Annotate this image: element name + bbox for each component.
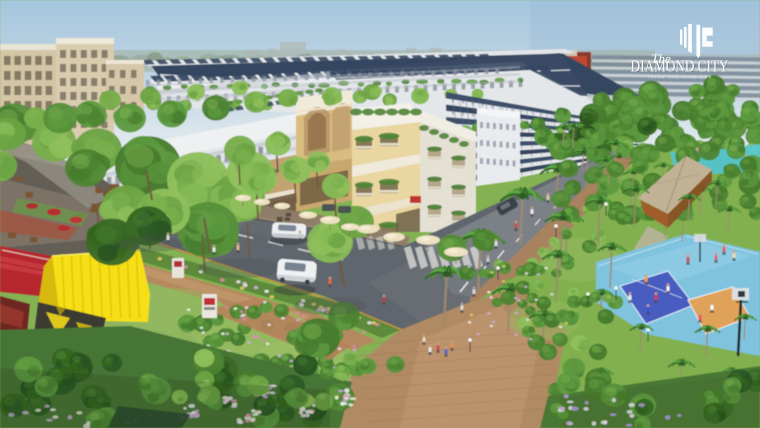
svg-text:DIAMOND CITY: DIAMOND CITY — [631, 58, 729, 76]
svg-text:THINK THE KING BOX: THINK THE KING BOX — [647, 74, 713, 79]
